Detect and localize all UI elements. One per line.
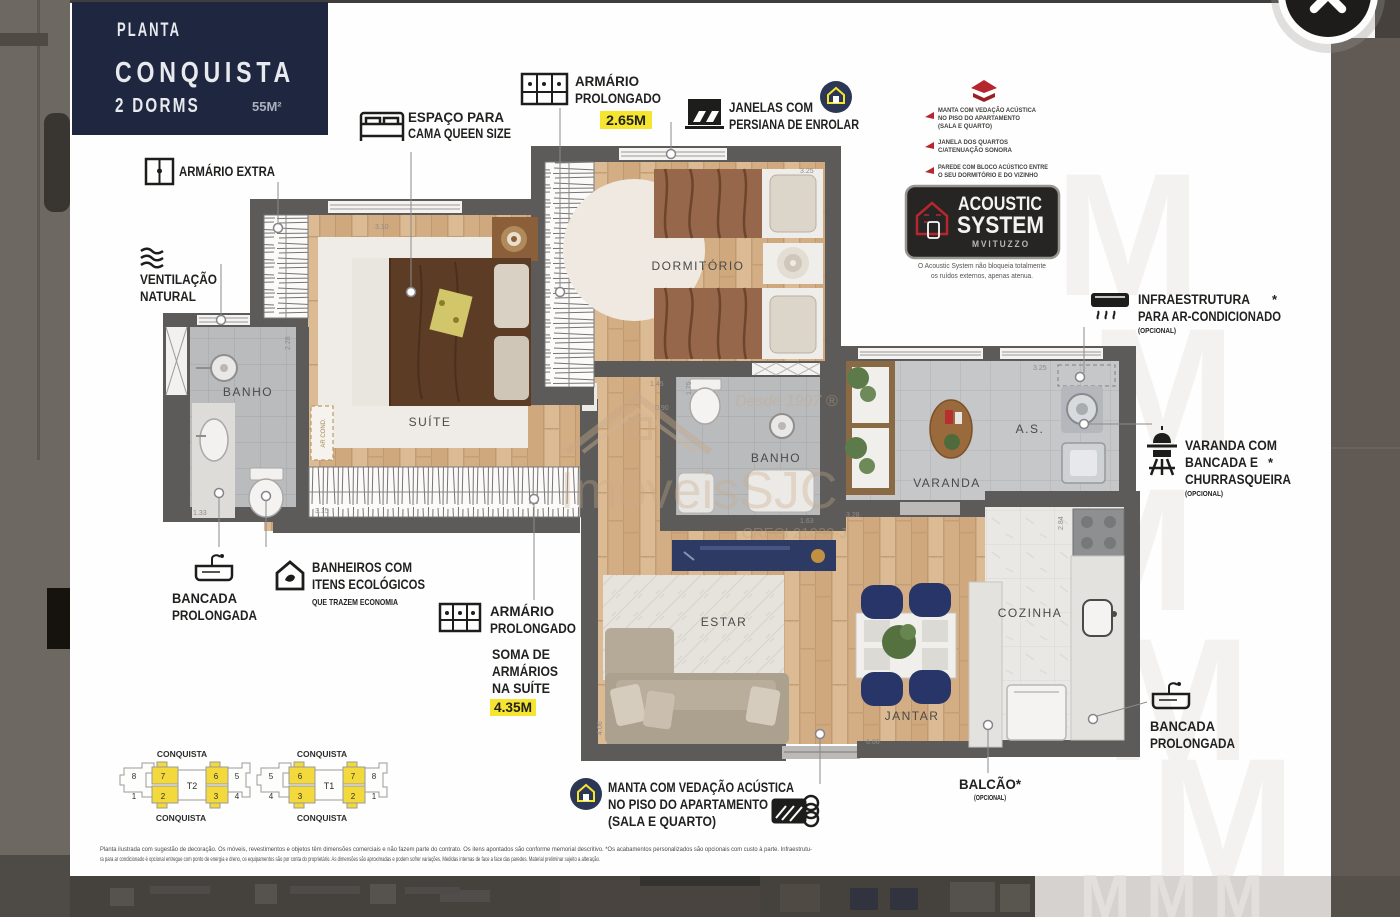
- svg-text:2: 2: [351, 792, 356, 801]
- svg-text:CAMA QUEEN SIZE: CAMA QUEEN SIZE: [408, 126, 511, 141]
- svg-text:PROLONGADA: PROLONGADA: [1150, 736, 1235, 751]
- svg-text:BANCADA E: BANCADA E: [1185, 455, 1258, 470]
- svg-text:BALCÃO*: BALCÃO*: [959, 777, 1022, 792]
- svg-text:COZINHA: COZINHA: [998, 606, 1063, 620]
- svg-text:8: 8: [132, 772, 137, 781]
- svg-text:CONQUISTA: CONQUISTA: [297, 813, 347, 823]
- svg-text:CRECI 21039-J: CRECI 21039-J: [742, 525, 847, 542]
- svg-text:A.S.: A.S.: [1016, 422, 1045, 436]
- svg-text:DORMITÓRIO: DORMITÓRIO: [652, 258, 745, 273]
- svg-text:CONQUISTA: CONQUISTA: [157, 749, 207, 759]
- svg-text:Desde 1997 ®: Desde 1997 ®: [735, 393, 838, 410]
- svg-text:NATURAL: NATURAL: [140, 289, 196, 304]
- svg-text:6.06: 6.06: [866, 739, 880, 746]
- svg-text:os ruídos externos, apenas ate: os ruídos externos, apenas atenua.: [931, 271, 1033, 280]
- svg-text:4.06: 4.06: [597, 721, 604, 735]
- svg-text:CONQUISTA: CONQUISTA: [115, 57, 295, 89]
- svg-text:JANELA DOS QUARTOS: JANELA DOS QUARTOS: [938, 139, 1009, 146]
- svg-text:(OPCIONAL): (OPCIONAL): [1185, 489, 1223, 498]
- svg-text:7: 7: [351, 772, 356, 781]
- svg-text:3.28: 3.28: [846, 512, 860, 519]
- svg-text:CONQUISTA: CONQUISTA: [297, 749, 347, 759]
- svg-text:8: 8: [372, 772, 377, 781]
- svg-text:2 DORMS: 2 DORMS: [115, 95, 200, 117]
- svg-text:PLANTA: PLANTA: [117, 20, 181, 41]
- svg-text:3.25: 3.25: [1033, 365, 1047, 372]
- svg-text:SUÍTE: SUÍTE: [409, 414, 452, 429]
- svg-text:4: 4: [235, 792, 240, 801]
- svg-text:C/ATENUAÇÃO SONORA: C/ATENUAÇÃO SONORA: [938, 145, 1012, 154]
- svg-text:VARANDA COM: VARANDA COM: [1185, 438, 1277, 453]
- svg-text:ImóveisSJC: ImóveisSJC: [560, 462, 837, 520]
- svg-text:2.65M: 2.65M: [606, 113, 646, 128]
- svg-text:3.15: 3.15: [315, 508, 329, 515]
- svg-text:SOMA DE: SOMA DE: [492, 647, 550, 662]
- svg-text:(SALA E QUARTO): (SALA E QUARTO): [938, 123, 992, 130]
- svg-text:ARMÁRIO EXTRA: ARMÁRIO EXTRA: [179, 164, 275, 179]
- svg-text:BANHEIROS COM: BANHEIROS COM: [312, 560, 412, 575]
- svg-text:JANTAR: JANTAR: [885, 709, 940, 723]
- svg-text:M M M: M M M: [1080, 863, 1263, 917]
- svg-text:T1: T1: [324, 781, 335, 791]
- svg-text:ARMÁRIOS: ARMÁRIOS: [492, 664, 558, 679]
- svg-text:1: 1: [372, 792, 377, 801]
- svg-text:7: 7: [161, 772, 166, 781]
- svg-text:55M²: 55M²: [252, 99, 282, 114]
- svg-text:SYSTEM: SYSTEM: [957, 212, 1044, 239]
- svg-text:T2: T2: [187, 781, 198, 791]
- svg-text:JANELAS COM: JANELAS COM: [729, 100, 813, 115]
- svg-text:PERSIANA DE ENROLAR: PERSIANA DE ENROLAR: [729, 117, 859, 132]
- svg-text:INFRAESTRUTURA: INFRAESTRUTURA: [1138, 292, 1250, 307]
- svg-text:4.35M: 4.35M: [494, 700, 532, 715]
- svg-text:2.28: 2.28: [285, 336, 292, 350]
- svg-text:2.84: 2.84: [1058, 516, 1065, 530]
- svg-text:ESPAÇO PARA: ESPAÇO PARA: [408, 110, 504, 125]
- svg-text:(OPCIONAL): (OPCIONAL): [1138, 326, 1176, 335]
- svg-text:VENTILAÇÃO: VENTILAÇÃO: [140, 272, 217, 287]
- svg-text:O SEU DORMITÓRIO E DO VIZINHO: O SEU DORMITÓRIO E DO VIZINHO: [938, 170, 1038, 179]
- svg-text:ARMÁRIO: ARMÁRIO: [490, 604, 554, 619]
- svg-text:NA SUÍTE: NA SUÍTE: [492, 681, 550, 696]
- svg-text:PROLONGADO: PROLONGADO: [490, 621, 576, 636]
- svg-text:1.33: 1.33: [193, 510, 207, 517]
- svg-text:PAREDE COM BLOCO ACÚSTICO ENTR: PAREDE COM BLOCO ACÚSTICO ENTRE: [938, 162, 1049, 171]
- svg-text:5: 5: [235, 772, 240, 781]
- svg-text:6: 6: [214, 772, 219, 781]
- svg-text:Planta ilustrada com sugestão: Planta ilustrada com sugestão de decoraç…: [100, 846, 812, 853]
- svg-text:3.25: 3.25: [800, 168, 814, 175]
- svg-text:ra para ar condicionado é opci: ra para ar condicionado é opcional entre…: [100, 856, 600, 863]
- svg-text:NO PISO DO APARTAMENTO: NO PISO DO APARTAMENTO: [938, 115, 1020, 122]
- svg-text:(SALA E QUARTO): (SALA E QUARTO): [608, 814, 716, 829]
- svg-text:1: 1: [132, 792, 137, 801]
- svg-text:BANHO: BANHO: [223, 385, 273, 399]
- svg-text:MVITUZZO: MVITUZZO: [972, 239, 1030, 249]
- svg-text:O Acoustic System não bloqueia: O Acoustic System não bloqueia totalment…: [918, 261, 1046, 270]
- svg-text:3: 3: [298, 792, 303, 801]
- svg-text:MANTA COM VEDAÇÃO ACÚSTICA: MANTA COM VEDAÇÃO ACÚSTICA: [608, 780, 794, 795]
- svg-text:3: 3: [214, 792, 219, 801]
- svg-text:PROLONGADO: PROLONGADO: [575, 91, 661, 106]
- svg-text:BANCADA: BANCADA: [172, 591, 237, 606]
- svg-text:(OPCIONAL): (OPCIONAL): [974, 795, 1006, 802]
- svg-text:5: 5: [269, 772, 274, 781]
- svg-text:ARMÁRIO: ARMÁRIO: [575, 74, 639, 89]
- svg-text:PROLONGADA: PROLONGADA: [172, 608, 257, 623]
- svg-text:1.75: 1.75: [686, 381, 693, 395]
- svg-text:MANTA COM VEDAÇÃO ACÚSTICA: MANTA COM VEDAÇÃO ACÚSTICA: [938, 105, 1036, 114]
- svg-text:NO PISO DO APARTAMENTO: NO PISO DO APARTAMENTO: [608, 797, 768, 812]
- svg-text:QUE TRAZEM ECONOMIA: QUE TRAZEM ECONOMIA: [312, 597, 398, 607]
- svg-text:1.45: 1.45: [650, 381, 664, 388]
- svg-text:PARA AR-CONDICIONADO: PARA AR-CONDICIONADO: [1138, 309, 1281, 324]
- svg-text:CONQUISTA: CONQUISTA: [156, 813, 206, 823]
- svg-text:ESTAR: ESTAR: [701, 615, 748, 629]
- svg-text:2: 2: [161, 792, 166, 801]
- svg-text:3.10: 3.10: [375, 224, 389, 231]
- svg-text:AR COND.: AR COND.: [321, 418, 327, 448]
- svg-text:VARANDA: VARANDA: [913, 476, 981, 490]
- svg-text:CHURRASQUEIRA: CHURRASQUEIRA: [1185, 472, 1291, 487]
- svg-text:6: 6: [298, 772, 303, 781]
- svg-text:ITENS ECOLÓGICOS: ITENS ECOLÓGICOS: [312, 577, 425, 592]
- svg-text:BANCADA: BANCADA: [1150, 719, 1215, 734]
- svg-text:4: 4: [269, 792, 274, 801]
